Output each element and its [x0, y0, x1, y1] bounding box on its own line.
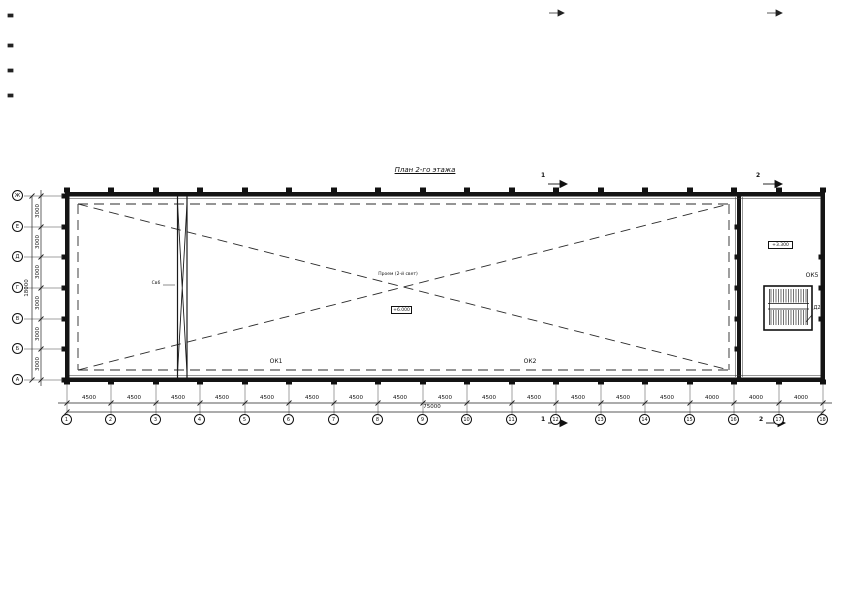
- grid-bubble-bottom: 17: [773, 414, 784, 425]
- grid-bubble-bottom: 15: [684, 414, 695, 425]
- dim-bay: 4500: [256, 395, 278, 401]
- dim-bay: 4500: [478, 395, 500, 401]
- opening-label-ok2: ОК2: [515, 358, 545, 365]
- dim-bay-left: 3000: [35, 353, 41, 375]
- grid-bubble-left: А: [12, 374, 23, 385]
- dim-bay: 4500: [567, 395, 589, 401]
- staircase: [764, 286, 812, 330]
- dim-bay: 4500: [345, 395, 367, 401]
- opening-label-ok1: ОК1: [261, 358, 291, 365]
- grid-bubble-bottom: 11: [506, 414, 517, 425]
- grid-bubble-bottom: 8: [372, 414, 383, 425]
- elevation-mark-center: +6.000: [391, 306, 412, 314]
- grid-bubble-left: Д: [12, 251, 23, 262]
- grid-bubble-bottom: 14: [639, 414, 650, 425]
- dim-bay-left: 3000: [35, 323, 41, 345]
- dim-bay: 4500: [167, 395, 189, 401]
- section-label-2-bottom: 2: [759, 416, 763, 423]
- dim-bay-left: 3000: [35, 261, 41, 283]
- section-label-1-bottom: 1: [541, 416, 545, 423]
- dim-bay-left: 3000: [35, 200, 41, 222]
- dim-bay: 4500: [211, 395, 233, 401]
- dim-bay: 4500: [523, 395, 545, 401]
- dim-bay: 4500: [123, 395, 145, 401]
- grid-bubble-bottom: 18: [817, 414, 828, 425]
- drawing-title: План 2-го этажа: [358, 166, 492, 174]
- section-label-2-top: 2: [756, 172, 760, 179]
- grid-bubble-bottom: 13: [595, 414, 606, 425]
- dim-bay-left: 3000: [35, 231, 41, 253]
- stray-edge-marks: [8, 10, 782, 97]
- drawing-sheet: План 2-го этажа ОК1 ОК2 ОК5 Д2 Св6 Проем…: [0, 0, 842, 595]
- dim-total-left: 18000: [24, 277, 30, 299]
- dim-bay: 4500: [612, 395, 634, 401]
- grid-bubble-bottom: 16: [728, 414, 739, 425]
- dim-bay: 4500: [78, 395, 100, 401]
- grid-bubble-bottom: 6: [283, 414, 294, 425]
- dim-bay-left: 3000: [35, 292, 41, 314]
- dim-bay: 4000: [701, 395, 723, 401]
- grid-bubble-bottom: 2: [105, 414, 116, 425]
- grid-bubble-left: Г: [12, 282, 23, 293]
- brace-label-sv6: Св6: [148, 281, 164, 286]
- grid-bubble-bottom: 4: [194, 414, 205, 425]
- void-dashed-outline: [78, 204, 729, 370]
- elevation-mark-stair: +3.300: [768, 241, 793, 249]
- dim-bay: 4000: [745, 395, 767, 401]
- dim-bay: 4500: [434, 395, 456, 401]
- grid-bubble-left: Ж: [12, 190, 23, 201]
- grid-bubble-bottom: 12: [550, 414, 561, 425]
- dim-bay: 4500: [656, 395, 678, 401]
- grid-bubble-bottom: 5: [239, 414, 250, 425]
- grid-bubble-bottom: 9: [417, 414, 428, 425]
- grid-bubble-left: В: [12, 313, 23, 324]
- vertical-brace: [163, 197, 187, 378]
- column-marks: [62, 188, 827, 385]
- dim-bay: 4500: [389, 395, 411, 401]
- grid-bubble-bottom: 7: [328, 414, 339, 425]
- dim-bay: 4000: [790, 395, 812, 401]
- door-label-d2: Д2: [809, 305, 825, 312]
- grid-bubble-left: Б: [12, 343, 23, 354]
- grid-bubble-bottom: 3: [150, 414, 161, 425]
- section-marks: [548, 181, 785, 427]
- opening-label-ok5: ОК5: [799, 272, 825, 279]
- grid-bubble-left: Е: [12, 221, 23, 232]
- grid-bubble-bottom: 10: [461, 414, 472, 425]
- plan-linework: [0, 0, 842, 595]
- grid-bubble-bottom: 1: [61, 414, 72, 425]
- section-label-1-top: 1: [541, 172, 545, 179]
- dim-total-bottom: 75000: [410, 404, 454, 410]
- dim-bay: 4500: [301, 395, 323, 401]
- void-note: Проем (2-й свет): [356, 272, 440, 277]
